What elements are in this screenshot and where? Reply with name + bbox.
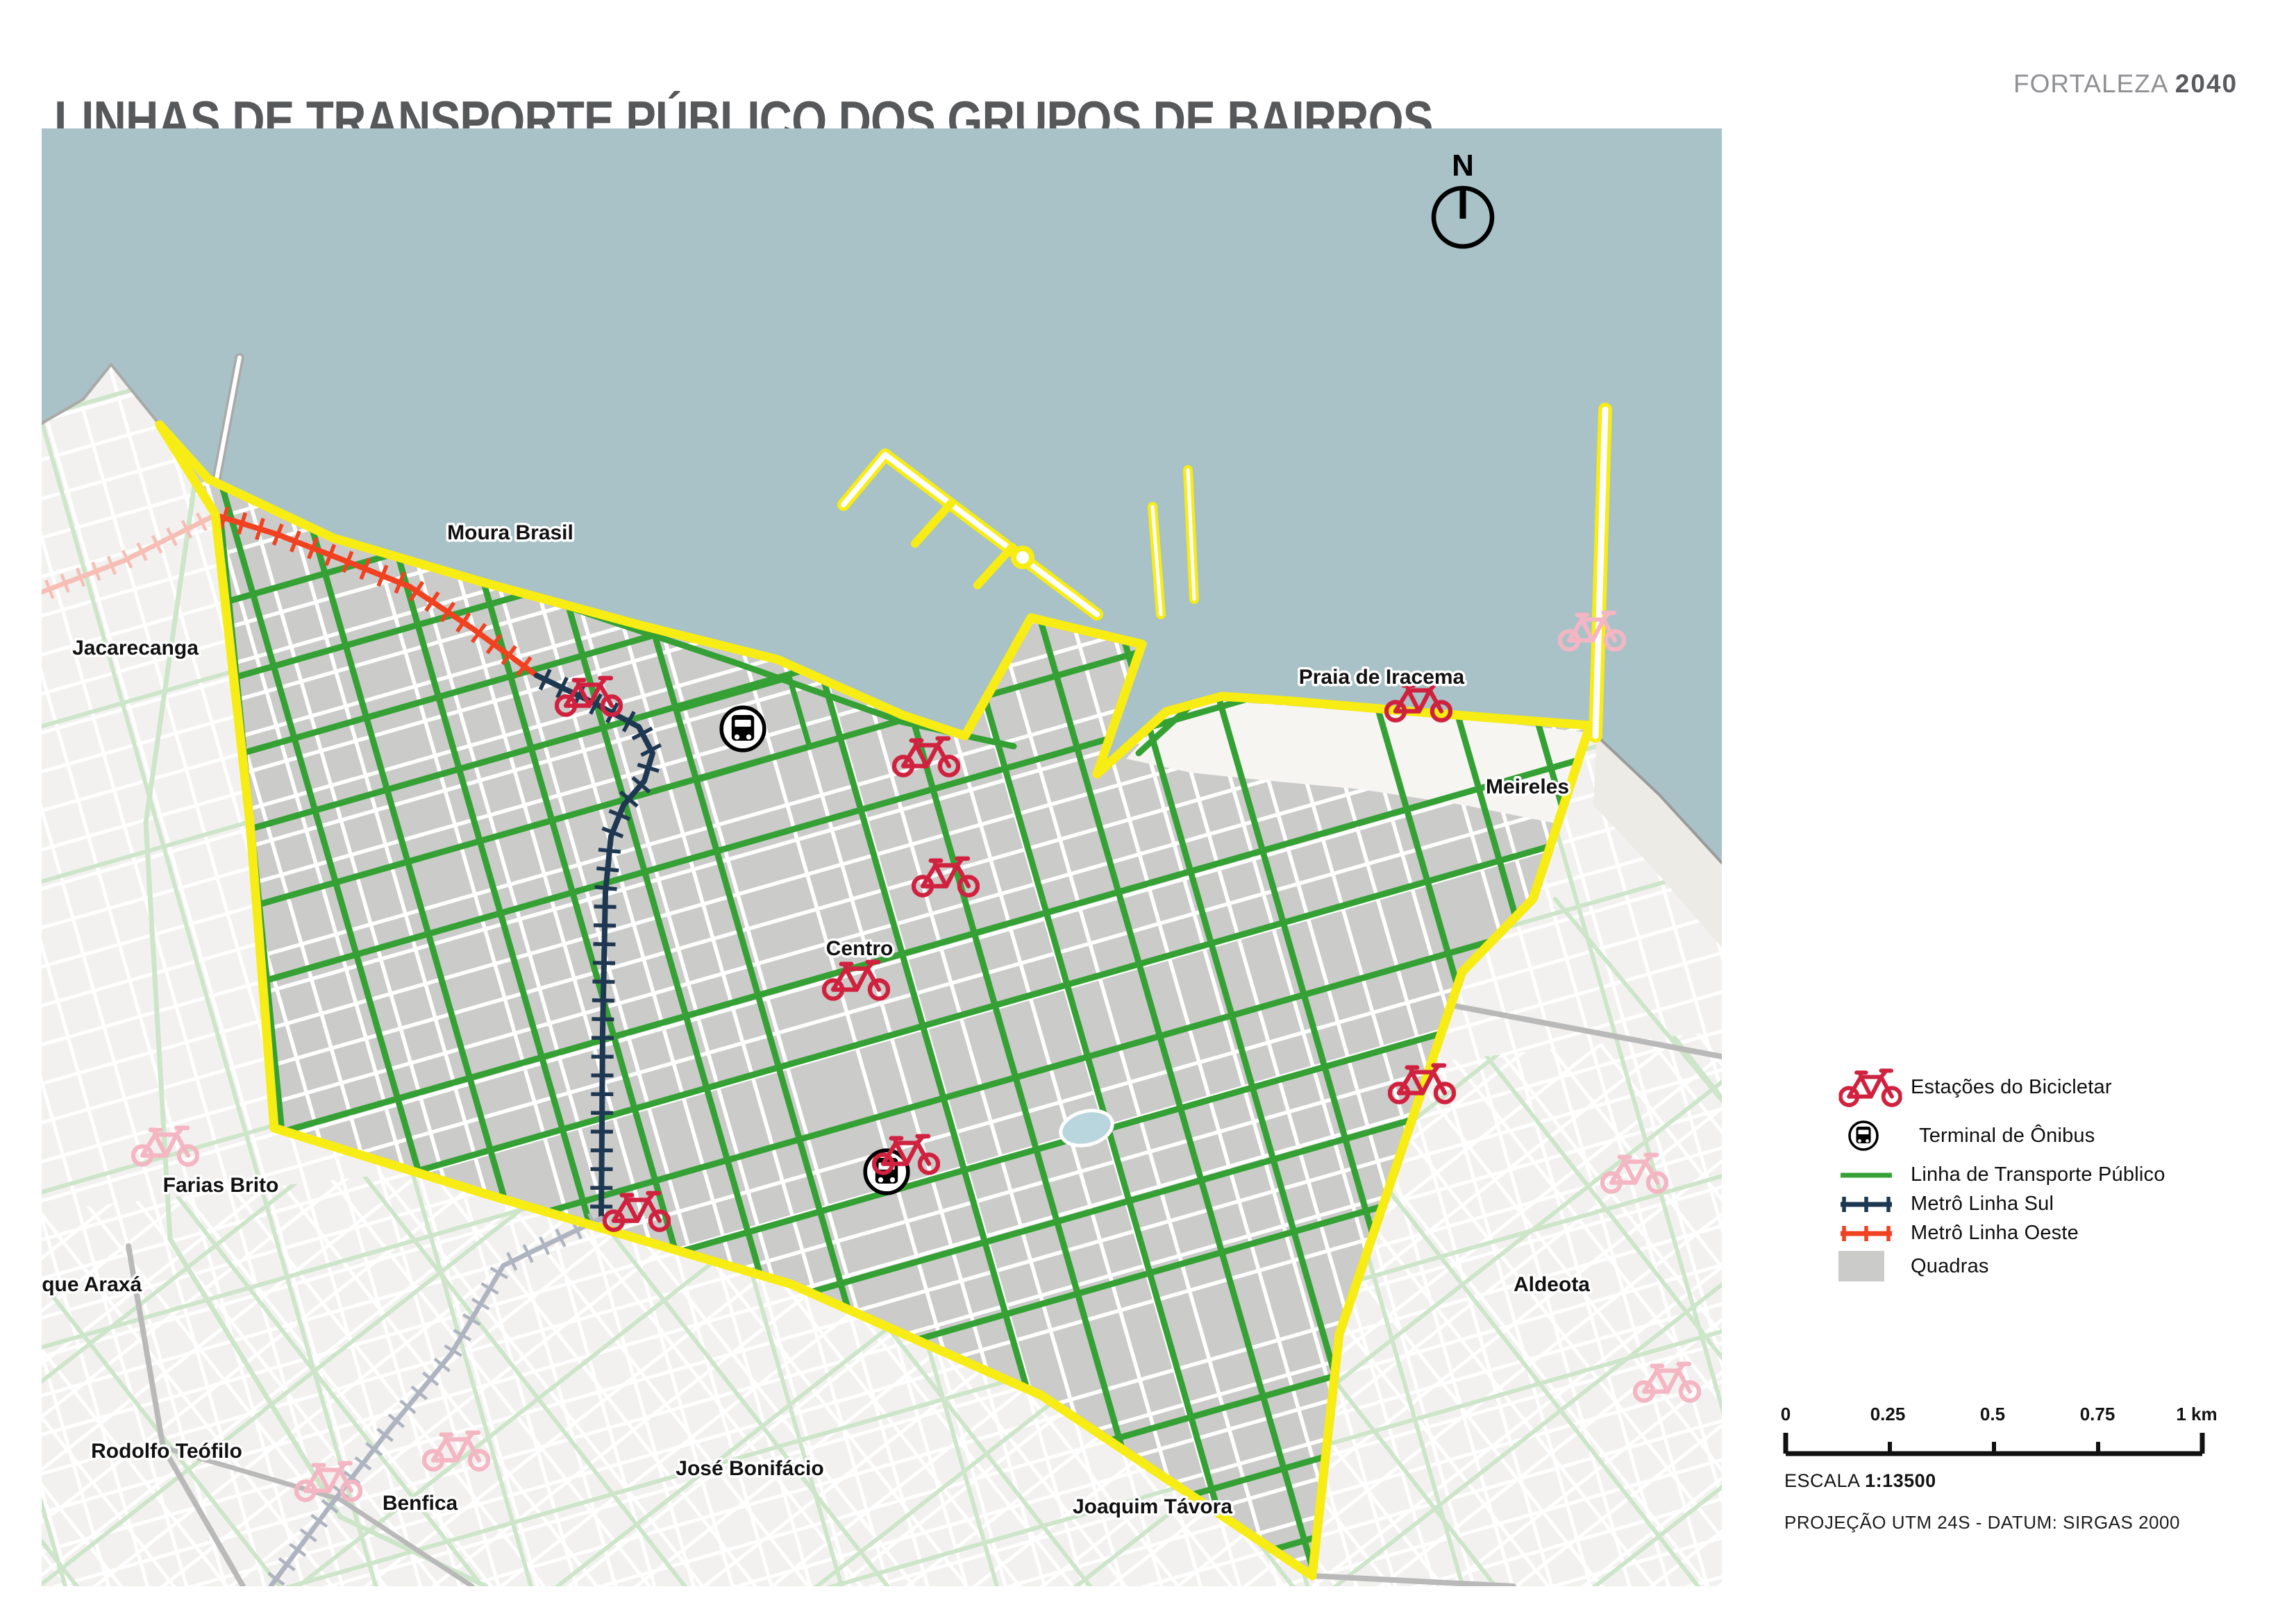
neighborhood-label: Benfica [383, 1492, 458, 1515]
city-map: JacarecangaMoura BrasilPraia de IracemaM… [42, 128, 1722, 1586]
legend-item-bus-terminal: Terminal de Ônibus [1838, 1119, 2269, 1152]
metro-oeste-line-icon [1838, 1223, 1911, 1244]
neighborhood-label: Farias Brito [163, 1174, 279, 1197]
scale-tick-labels: 0 0.25 0.5 0.75 1 km [1783, 1404, 2202, 1429]
brand-logo: FORTALEZA 2040 [2013, 69, 2238, 99]
scale-text: ESCALA 1:13500 [1784, 1470, 1936, 1492]
bus-terminal-icon [721, 707, 764, 750]
neighborhood-label: José Bonifácio [676, 1457, 823, 1480]
north-label: N [1452, 149, 1474, 183]
brand-year: 2040 [2175, 69, 2238, 98]
legend-item-metro-sul: Metrô Linha Sul [1838, 1193, 2269, 1216]
neighborhood-label: Joaquim Távora [1073, 1495, 1232, 1518]
legend-item-quadras: Quadras [1838, 1251, 2269, 1281]
neighborhood-label: Praia de Iracema [1299, 666, 1465, 689]
bus-icon [1838, 1119, 1919, 1152]
legend-item-public-transport-line: Linha de Transporte Público [1838, 1163, 2269, 1186]
legend-label: Estações do Bicicletar [1911, 1076, 2112, 1099]
legend-label: Quadras [1911, 1255, 1989, 1278]
neighborhood-label: Rodolfo Teófilo [91, 1440, 242, 1463]
legend-item-bike-stations: Estações do Bicicletar [1838, 1066, 2269, 1108]
projection-text: PROJEÇÃO UTM 24S - DATUM: SIRGAS 2000 [1784, 1512, 2180, 1533]
legend-label: Terminal de Ônibus [1919, 1125, 2095, 1147]
scale-tick: 0.5 [1980, 1404, 2005, 1425]
quadras-swatch [1838, 1251, 1911, 1281]
scale-tick: 0.25 [1870, 1404, 1906, 1425]
scale-tick: 0 [1781, 1404, 1791, 1425]
legend-label: Metrô Linha Oeste [1911, 1222, 2079, 1245]
neighborhood-label: Jacarecanga [72, 637, 199, 659]
bicycle-icon [1838, 1066, 1911, 1108]
scale-tick: 1 km [2176, 1404, 2217, 1425]
green-line-icon [1838, 1170, 1911, 1180]
legend-label: Linha de Transporte Público [1911, 1163, 2165, 1186]
scale-tick: 0.75 [2080, 1404, 2115, 1425]
neighborhood-label: Moura Brasil [447, 521, 573, 544]
neighborhood-label: Centro [826, 937, 894, 960]
legend-label: Metrô Linha Sul [1911, 1193, 2054, 1216]
map-legend: Estações do Bicicletar Terminal de Ônibu… [1838, 1066, 2269, 1288]
scale-bar-ruler [1779, 1429, 2209, 1459]
map-canvas: JacarecangaMoura BrasilPraia de IracemaM… [42, 128, 1722, 1586]
neighborhood-label: Parque Araxá [42, 1273, 142, 1296]
metro-sul-line-icon [1838, 1194, 1911, 1215]
neighborhood-label: Meireles [1486, 775, 1569, 798]
scale-bar: 0 0.25 0.5 0.75 1 km ESCALA 1:13500 PROJ… [1783, 1404, 2202, 1429]
neighborhood-label: Aldeota [1514, 1273, 1590, 1296]
legend-item-metro-oeste: Metrô Linha Oeste [1838, 1222, 2269, 1245]
brand-name: FORTALEZA [2013, 69, 2167, 98]
